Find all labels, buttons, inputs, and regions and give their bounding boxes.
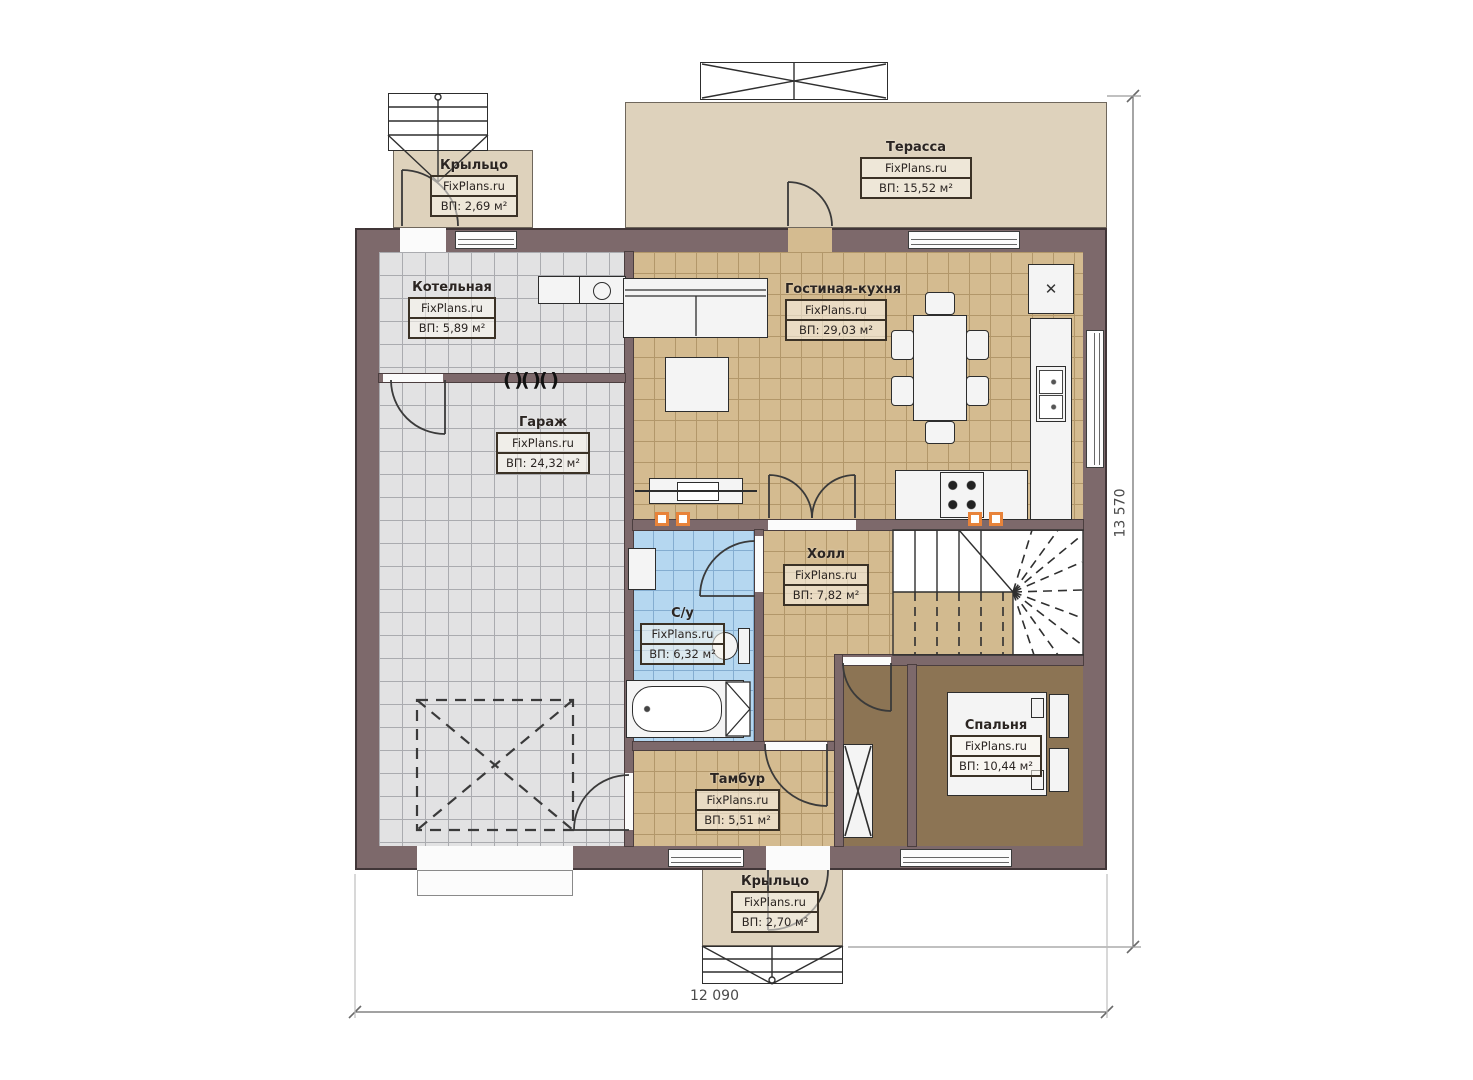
room-title: Терасса [860,140,972,155]
door-opening-garage-vestibule [625,773,633,830]
brand-watermark: FixPlans.ru [733,893,817,913]
brand-watermark: FixPlans.ru [785,566,867,586]
nightstand [1049,748,1069,792]
sofa [623,278,768,338]
room-title: Гостиная-кухня [785,282,887,297]
sink-basin [1039,370,1063,394]
coffee-table [665,357,729,412]
brand-watermark: FixPlans.ru [787,301,885,321]
window-vestibule [668,849,744,867]
vent-shaft-icon [968,512,982,526]
brand-watermark: FixPlans.ru [432,177,516,197]
toilet-tank [738,628,750,664]
door-opening-bedroom [843,657,891,665]
nightstand [1049,694,1069,738]
chair [891,330,914,360]
boiler-counter [538,276,626,304]
vent-shaft-icon [989,512,1003,526]
fridge: ✕ [1028,264,1074,314]
window-living [908,231,1020,249]
room-title: Котельная [408,280,496,295]
wall-hall-corridor [835,655,843,846]
window-bedroom [900,849,1012,867]
garage-label: Гараж FixPlans.ru ВП: 24,32 м² [496,415,590,474]
entry-door-opening [766,846,830,870]
wall-bedroom-left [908,665,916,846]
terrace-label: Терасса FixPlans.ru ВП: 15,52 м² [860,140,972,199]
chair [925,292,955,315]
room-area: ВП: 5,51 м² [697,811,778,829]
door-opening-terrace [788,228,832,252]
brand-watermark: FixPlans.ru [952,737,1040,757]
garage-gate-opening [417,846,573,870]
brand-watermark: FixPlans.ru [862,159,970,179]
boiler-label: Котельная FixPlans.ru ВП: 5,89 м² [408,280,496,339]
chair [966,376,989,406]
porch-top-steps [388,93,488,151]
door-opening-bathroom [755,536,763,592]
dimension-height-label: 13 570 [1113,489,1129,538]
living-kitchen-label: Гостиная-кухня FixPlans.ru ВП: 29,03 м² [785,282,887,341]
chimney-symbol [700,62,888,100]
hall-label: Холл FixPlans.ru ВП: 7,82 м² [783,547,869,606]
dining-table [913,315,967,421]
bathtub-basin [632,686,722,732]
room-title: Крыльцо [731,874,819,889]
vent-shaft-icon [676,512,690,526]
chair [966,330,989,360]
pillow [1031,698,1044,718]
floor-plan-canvas: ✕ [0,0,1473,1080]
tv-unit [677,482,719,501]
bathroom-sink [628,548,656,590]
door-opening-double [768,520,856,530]
brand-watermark: FixPlans.ru [410,299,494,319]
vestibule-label: Тамбур FixPlans.ru ВП: 5,51 м² [695,772,780,831]
porch-bottom-steps [702,946,843,984]
door-opening-boiler-garage [383,374,443,382]
room-title: С/у [640,606,725,621]
window-kitchen-right [1086,330,1104,468]
room-area: ВП: 2,69 м² [432,197,516,215]
vent-shaft-icon [655,512,669,526]
boiler-counter-divider [579,277,580,303]
brand-watermark: FixPlans.ru [697,791,778,811]
sink-basin [1039,395,1063,419]
tv-stand [649,478,743,504]
room-title: Холл [783,547,869,562]
room-area: ВП: 29,03 м² [787,321,885,339]
room-area: ВП: 7,82 м² [785,586,867,604]
chair [925,421,955,444]
room-title: Спальня [950,718,1042,733]
door-opening-hall-vestibule [765,742,827,750]
door-opening-porch-top [400,228,446,252]
porch-top-label: Крыльцо FixPlans.ru ВП: 2,69 м² [430,158,518,217]
room-area: ВП: 10,44 м² [952,757,1040,775]
boiler-unit-icon [593,282,611,300]
porch-bottom-label: Крыльцо FixPlans.ru ВП: 2,70 м² [731,874,819,933]
room-area: ВП: 15,52 м² [862,179,970,197]
room-title: Тамбур [695,772,780,787]
bathroom-label: С/у FixPlans.ru ВП: 6,32 м² [640,606,725,665]
room-area: ВП: 2,70 м² [733,913,817,931]
brand-watermark: FixPlans.ru [642,625,723,645]
dimension-width-label: 12 090 [690,988,739,1004]
stairs-lower-floor [893,592,1013,655]
room-title: Гараж [496,415,590,430]
wall-living-hall [633,520,1083,530]
room-title: Крыльцо [430,158,518,173]
room-area: ВП: 6,32 м² [642,645,723,663]
appliance-cross-icon: ✕ [1045,280,1058,298]
room-area: ВП: 5,89 м² [410,319,494,337]
brand-watermark: FixPlans.ru [498,434,588,454]
bedroom-label: Спальня FixPlans.ru ВП: 10,44 м² [950,718,1042,777]
garage-gate-apron [417,870,573,896]
wardrobe-shaft [843,744,873,838]
kitchen-sink [1036,366,1066,422]
bathtub [626,680,744,738]
room-area: ВП: 24,32 м² [498,454,588,472]
window-boiler [455,231,517,249]
chair [891,376,914,406]
